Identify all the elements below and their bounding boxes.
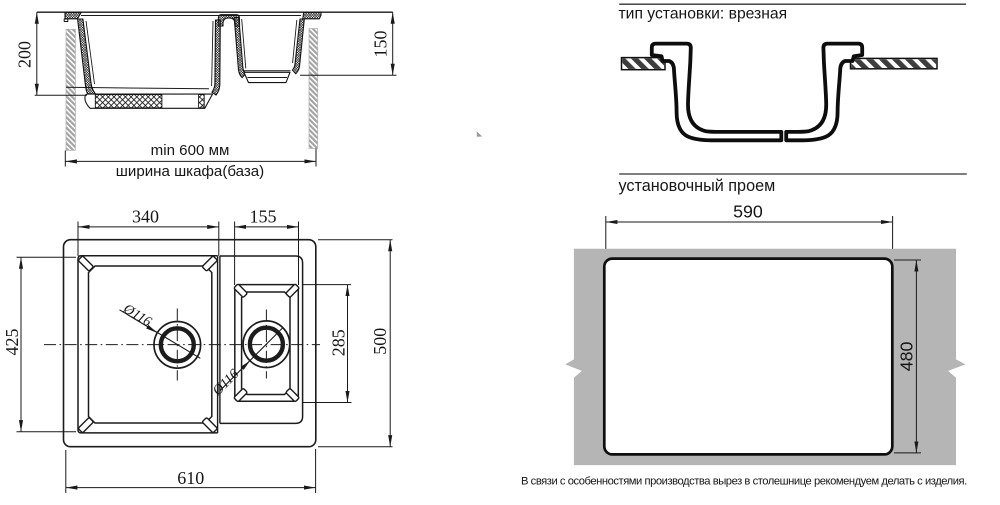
svg-text:155: 155 xyxy=(250,206,277,226)
svg-text:590: 590 xyxy=(733,202,763,222)
svg-text:тип установки: врезная: тип установки: врезная xyxy=(619,5,788,22)
svg-text:610: 610 xyxy=(177,468,204,488)
svg-text:425: 425 xyxy=(2,329,22,356)
svg-text:ширина шкафа(база): ширина шкафа(база) xyxy=(116,163,264,180)
svg-text:500: 500 xyxy=(370,328,390,355)
svg-text:min 600 мм: min 600 мм xyxy=(151,142,230,159)
svg-text:200: 200 xyxy=(15,41,35,68)
svg-text:В связи с особенностями произв: В связи с особенностями производства выр… xyxy=(521,476,967,488)
svg-text:285: 285 xyxy=(329,329,349,356)
svg-text:340: 340 xyxy=(132,206,159,226)
svg-text:150: 150 xyxy=(371,31,391,58)
svg-text:480: 480 xyxy=(897,341,917,371)
svg-text:установочный проем: установочный проем xyxy=(619,177,776,195)
